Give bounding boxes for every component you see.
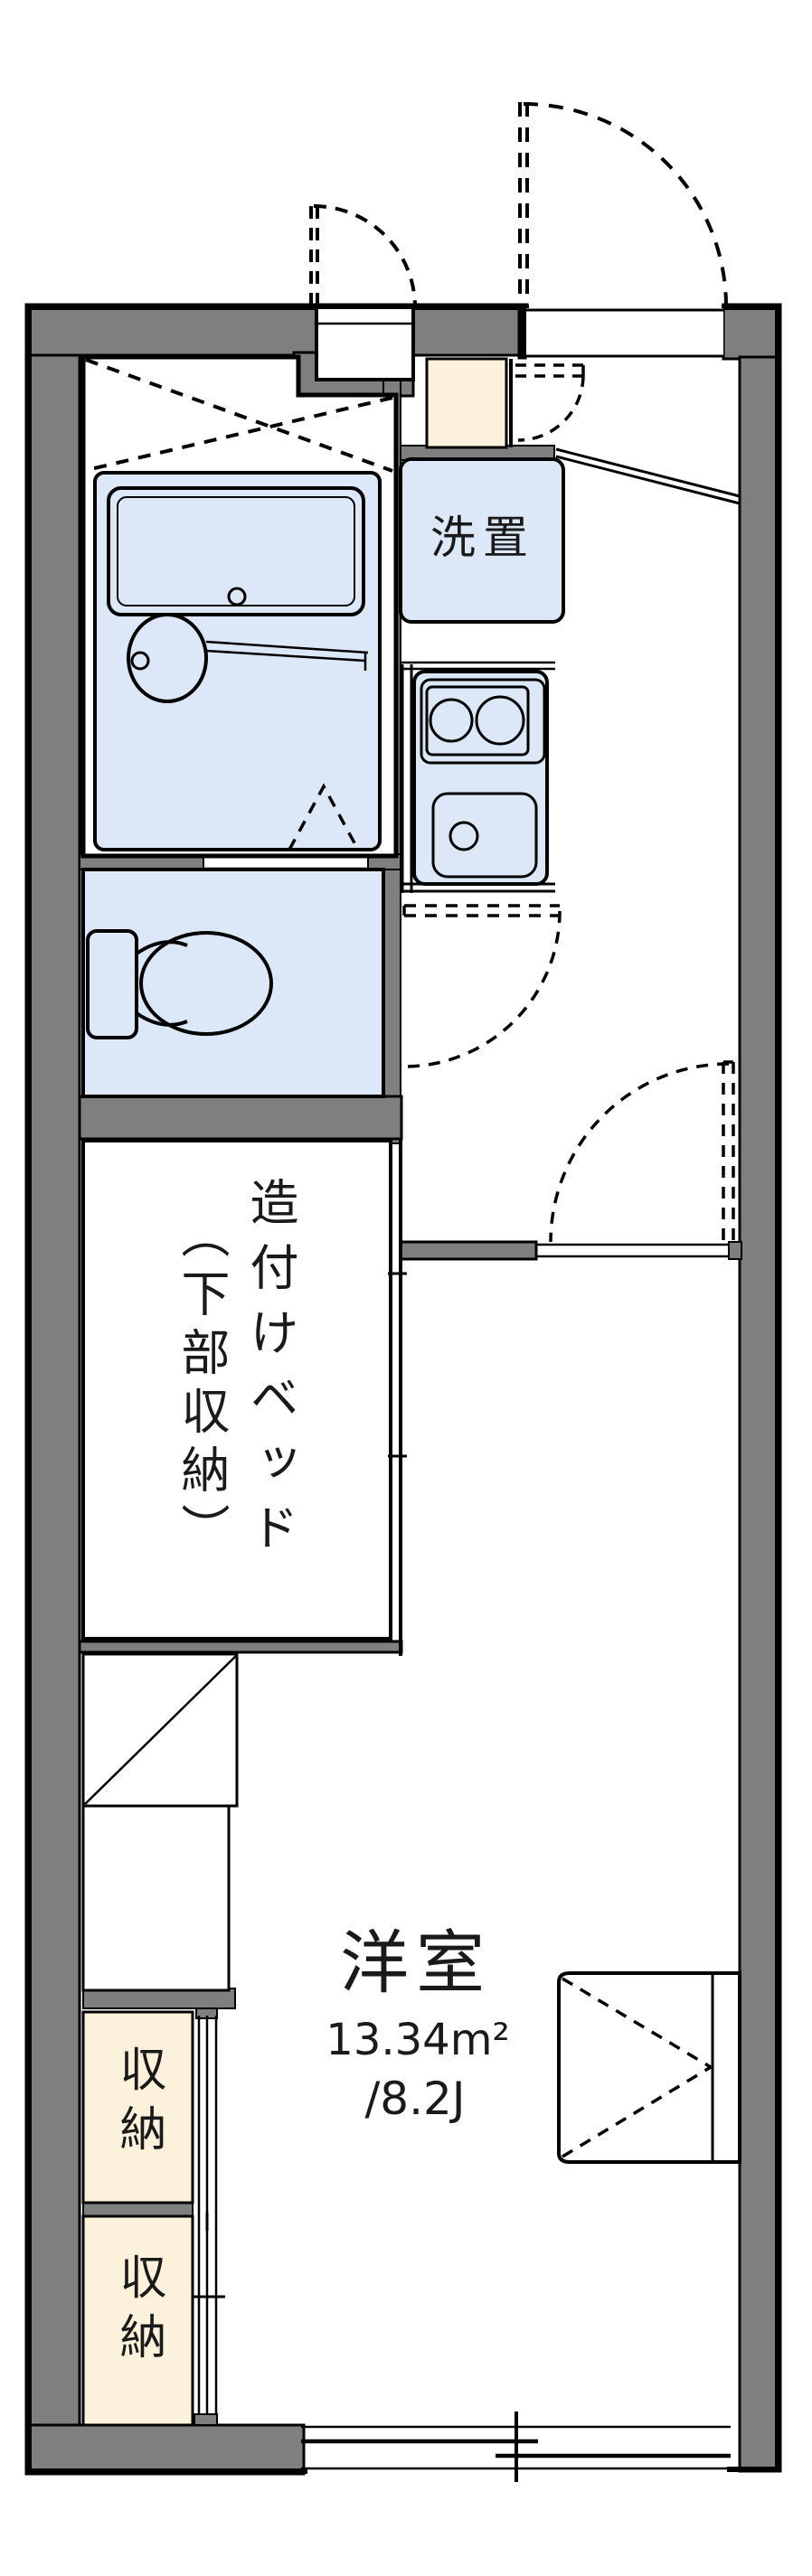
- bathroom: [83, 357, 396, 869]
- window-bottom: [301, 2411, 731, 2482]
- room-name-label: 洋室: [340, 1929, 492, 1998]
- wall-hall-bottom-pillar: [729, 1242, 741, 1259]
- wall-entrance-jamb: [518, 305, 526, 359]
- wall-right: [740, 357, 780, 2471]
- wall-bottom: [26, 2425, 304, 2474]
- wall-toilet-bottom: [80, 1096, 401, 1139]
- kitchen-door-arc: [404, 911, 560, 1067]
- toilet-bowl: [141, 933, 271, 1034]
- niche-door-arc: [314, 206, 415, 307]
- kitchen-counter-top-lines: [401, 663, 555, 669]
- genkan-step: [427, 359, 506, 447]
- wash-basin: [128, 615, 206, 701]
- entrance-sill: [526, 308, 723, 357]
- room-doorway-sill-lines: [536, 1245, 729, 1256]
- room-door-arc: [551, 1064, 729, 1242]
- washroom-door-leaf: [515, 365, 583, 378]
- floorplan-drawing: [0, 0, 812, 2576]
- storage-lower-label: 収納: [115, 2252, 162, 2372]
- entrance-door-swing: [520, 102, 726, 306]
- storage-upper-label: 収納: [115, 2045, 162, 2164]
- niche-door-leaf: [311, 206, 317, 307]
- niche-door-swing: [311, 206, 415, 307]
- washer-space-label: 洗置: [430, 515, 535, 560]
- room-area-sqm-label: 13.34m²: [326, 2018, 509, 2062]
- washroom-door-arc: [518, 376, 583, 440]
- wall-hall-bottom: [401, 1242, 536, 1259]
- wall-storage-separator: [83, 2203, 193, 2216]
- wall-left: [26, 305, 80, 2474]
- washroom-door-swing: [515, 365, 583, 440]
- kitchen-unit-bottom-lines: [401, 884, 555, 891]
- bed-area: [83, 1141, 391, 1639]
- entry-and-kitchen: [401, 359, 740, 893]
- built-in-bed-label: 造付けベッド: [245, 1177, 294, 1567]
- outline-bottom-segments: [26, 2469, 779, 2471]
- kitchen-door-leaf: [404, 906, 560, 916]
- wall-corner-top-right: [723, 305, 780, 359]
- niche-box: [316, 307, 413, 380]
- window-right: [559, 1973, 740, 2162]
- entrance-opening: [524, 308, 723, 357]
- wall-niche: [316, 307, 413, 380]
- entrance-door-leaf: [520, 102, 527, 306]
- bed-under-storage-label: （下部収納）: [176, 1209, 225, 1562]
- wall-top-left: [26, 305, 527, 355]
- entrance-door-arc: [524, 104, 726, 306]
- white-box: [83, 1806, 229, 1990]
- kitchen-door-swing: [404, 906, 560, 1067]
- room-door-swing: [551, 1062, 733, 1242]
- counter-diagonal: [556, 449, 740, 503]
- floorplan-canvas: 洗置 造付けベッド （下部収納） 洋室 13.34m² /8.2J 収納 収納: [0, 0, 812, 2576]
- kitchen-unit-left-lines: [402, 664, 411, 893]
- room-doorway: [536, 1245, 729, 1256]
- wall-bed-bottom: [80, 1641, 401, 1652]
- toilet-tank: [88, 931, 137, 1038]
- room-area-tatami-label: /8.2J: [364, 2076, 465, 2121]
- toilet-room: [83, 870, 383, 1096]
- wall-bottom-notch: [194, 2414, 217, 2425]
- room-door-leaf: [723, 1062, 733, 1242]
